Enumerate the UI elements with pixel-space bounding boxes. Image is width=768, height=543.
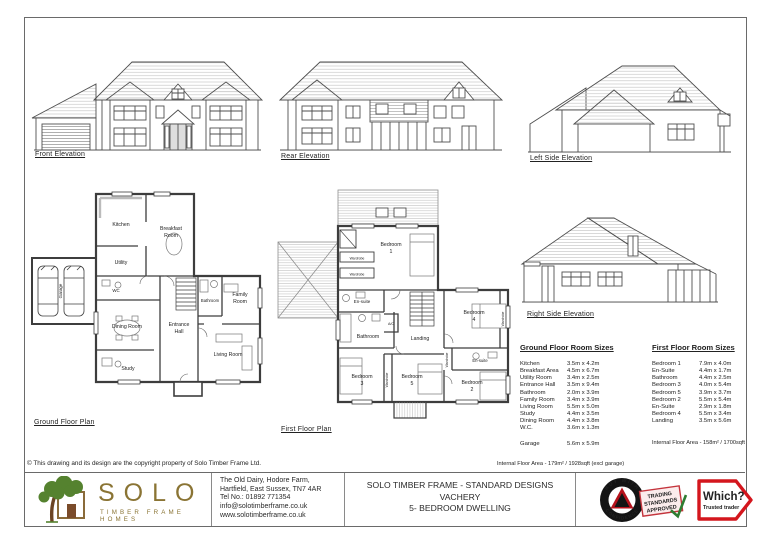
room-label-bedroom3: Bedroom (351, 374, 372, 380)
room-label-family: Family (232, 292, 248, 298)
room-label-bathroom: Bathroom (201, 298, 220, 303)
table-row: Bedroom 17.9m x 4.0m (652, 361, 768, 368)
table-row: Study4.4m x 3.5m (520, 411, 648, 418)
wardrobe-label: Wardrobe (350, 257, 365, 261)
svg-text:2: 2 (471, 387, 474, 393)
project-line: VACHERY (345, 492, 575, 504)
address-line: info@solotimberframe.co.uk (220, 503, 344, 512)
table-row: Landing3.5m x 5.6m (652, 418, 768, 425)
room-label-ac: A/C (388, 322, 394, 326)
right-side-elevation-drawing (518, 202, 723, 308)
table-row: Bathroom2.0m x 3.9m (520, 390, 648, 397)
table-row: Bathroom4.4m x 2.5m (652, 375, 768, 382)
room-label-bedroom4: Bedroom (463, 310, 484, 316)
first-room-sizes-table: First Floor Room Sizes Bedroom 17.9m x 4… (652, 343, 768, 425)
room-label-hall: Entrance (169, 322, 190, 328)
company-address: The Old Dairy, Hodore Farm, Hartfield, E… (212, 473, 345, 526)
table-row: Breakfast Area4.5m x 6.7m (520, 368, 648, 375)
svg-text:Wardrobe: Wardrobe (350, 273, 365, 277)
left-side-elevation-drawing (522, 28, 737, 158)
title-block: SOLO TIMBER FRAME HOMES The Old Dairy, H… (24, 472, 745, 526)
room-label-kitchen: Kitchen (112, 222, 129, 228)
svg-text:5: 5 (411, 381, 414, 387)
logo-wordmark: SOLO (98, 479, 203, 508)
project-line: SOLO TIMBER FRAME - STANDARD DESIGNS (345, 480, 575, 492)
table-title: Ground Floor Room Sizes (520, 343, 648, 352)
svg-text:Room: Room (164, 233, 178, 239)
svg-text:1: 1 (390, 249, 393, 255)
room-label-breakfast: Breakfast (160, 226, 182, 232)
address-line: www.solotimberframe.co.uk (220, 512, 344, 521)
stairs (176, 278, 196, 310)
room-label-bedroom5: Bedroom (401, 374, 422, 380)
svg-text:Wardrobe: Wardrobe (445, 353, 449, 368)
table-row: Entrance Hall3.5m x 9.4m (520, 382, 648, 389)
table-row: En-Suite2.9m x 1.8m (652, 404, 768, 411)
table-row: Bedroom 53.9m x 3.7m (652, 390, 768, 397)
project-title: SOLO TIMBER FRAME - STANDARD DESIGNS VAC… (345, 473, 576, 526)
ground-floor-plan-label: Ground Floor Plan (34, 419, 95, 426)
front-elevation-label: Front Elevation (35, 151, 85, 158)
table-row: Bedroom 45.5m x 3.4m (652, 411, 768, 418)
certification-badges: BUY WITH CONFIDENCE TRADING STANDARDS AP… (576, 473, 745, 526)
room-label-bedroom2: Bedroom (461, 380, 482, 386)
ground-floor-plan: Kitchen Breakfast Room Utility WC Dining… (28, 188, 273, 416)
svg-text:3: 3 (361, 381, 364, 387)
table-row: Living Room5.5m x 5.0m (520, 404, 648, 411)
first-floor-plan: Bedroom 1 Wardrobe Wardrobe En-suite Bat… (276, 186, 521, 436)
room-label-living: Living Room (214, 352, 243, 358)
svg-text:Trusted trader: Trusted trader (703, 505, 740, 511)
drawing-sheet: Front Elevation (0, 0, 768, 543)
table-row: En-Suite4.4m x 1.7m (652, 368, 768, 375)
stairs (410, 292, 434, 326)
project-line: 5- BEDROOM DWELLING (345, 503, 575, 515)
first-floor-plan-label: First Floor Plan (281, 426, 332, 433)
table-row: Bedroom 25.5m x 5.4m (652, 397, 768, 404)
left-side-elevation-label: Left Side Elevation (530, 155, 592, 162)
svg-text:4: 4 (473, 317, 476, 323)
svg-text:Room: Room (233, 299, 247, 305)
room-label-ensuite2: En-suite (472, 358, 488, 363)
rear-elevation-label: Rear Elevation (281, 153, 330, 160)
tree-house-icon (36, 476, 92, 524)
rear-elevation-drawing (276, 26, 506, 156)
table-row: W.C.3.6m x 1.3m (520, 425, 648, 432)
svg-text:Hall: Hall (175, 329, 184, 335)
logo-tagline: TIMBER FRAME HOMES (100, 509, 211, 523)
first-floor-area-note: Internal Floor Area - 158m² / 1700sqft (652, 440, 745, 446)
right-side-elevation-label: Right Side Elevation (527, 311, 594, 318)
which-trusted-trader-badge: Which? Trusted trader (696, 478, 754, 522)
room-label-wc: WC (112, 288, 119, 293)
room-label-garage: Garage (58, 283, 63, 298)
table-row: Family Room3.4m x 3.9m (520, 397, 648, 404)
address-line: The Old Dairy, Hodore Farm, (220, 477, 344, 486)
ground-room-sizes-table: Ground Floor Room Sizes Kitchen3.5m x 4.… (520, 343, 648, 448)
room-label-bedroom1: Bedroom (380, 242, 401, 248)
copyright-note: © This drawing and its design are the co… (27, 460, 261, 467)
table-row-garage: Garage5.6m x 5.9m (520, 441, 648, 448)
svg-text:Wardrobe: Wardrobe (501, 312, 505, 327)
room-label-landing: Landing (411, 336, 430, 342)
solo-logo: SOLO TIMBER FRAME HOMES (24, 473, 212, 526)
room-label-utility: Utility (115, 260, 128, 266)
ground-floor-area-note: Internal Floor Area - 179m² / 1928sqft (… (497, 461, 624, 467)
address-line: Hartfield, East Sussex, TN7 4AR (220, 486, 344, 495)
trading-standards-stamp: TRADING STANDARDS APPROVED (638, 482, 693, 527)
glazed-doors (668, 270, 710, 302)
room-label-bathroom: Bathroom (357, 334, 380, 340)
table-row: Dining Room4.4m x 3.8m (520, 418, 648, 425)
room-label-ensuite1: En-suite (354, 299, 371, 304)
table-row: Kitchen3.5m x 4.2m (520, 361, 648, 368)
room-label-dining: Dining Room (112, 324, 142, 330)
table-row: Utility Room3.4m x 2.5m (520, 375, 648, 382)
svg-text:Which?: Which? (703, 491, 745, 503)
garage-door (42, 124, 90, 150)
address-line: Tel No.: 01892 771354 (220, 494, 344, 503)
table-title: First Floor Room Sizes (652, 343, 768, 352)
room-label-study: Study (121, 366, 135, 372)
table-row: Bedroom 34.0m x 5.4m (652, 382, 768, 389)
front-elevation-drawing (30, 26, 265, 156)
svg-text:Wardrobe: Wardrobe (385, 373, 389, 388)
